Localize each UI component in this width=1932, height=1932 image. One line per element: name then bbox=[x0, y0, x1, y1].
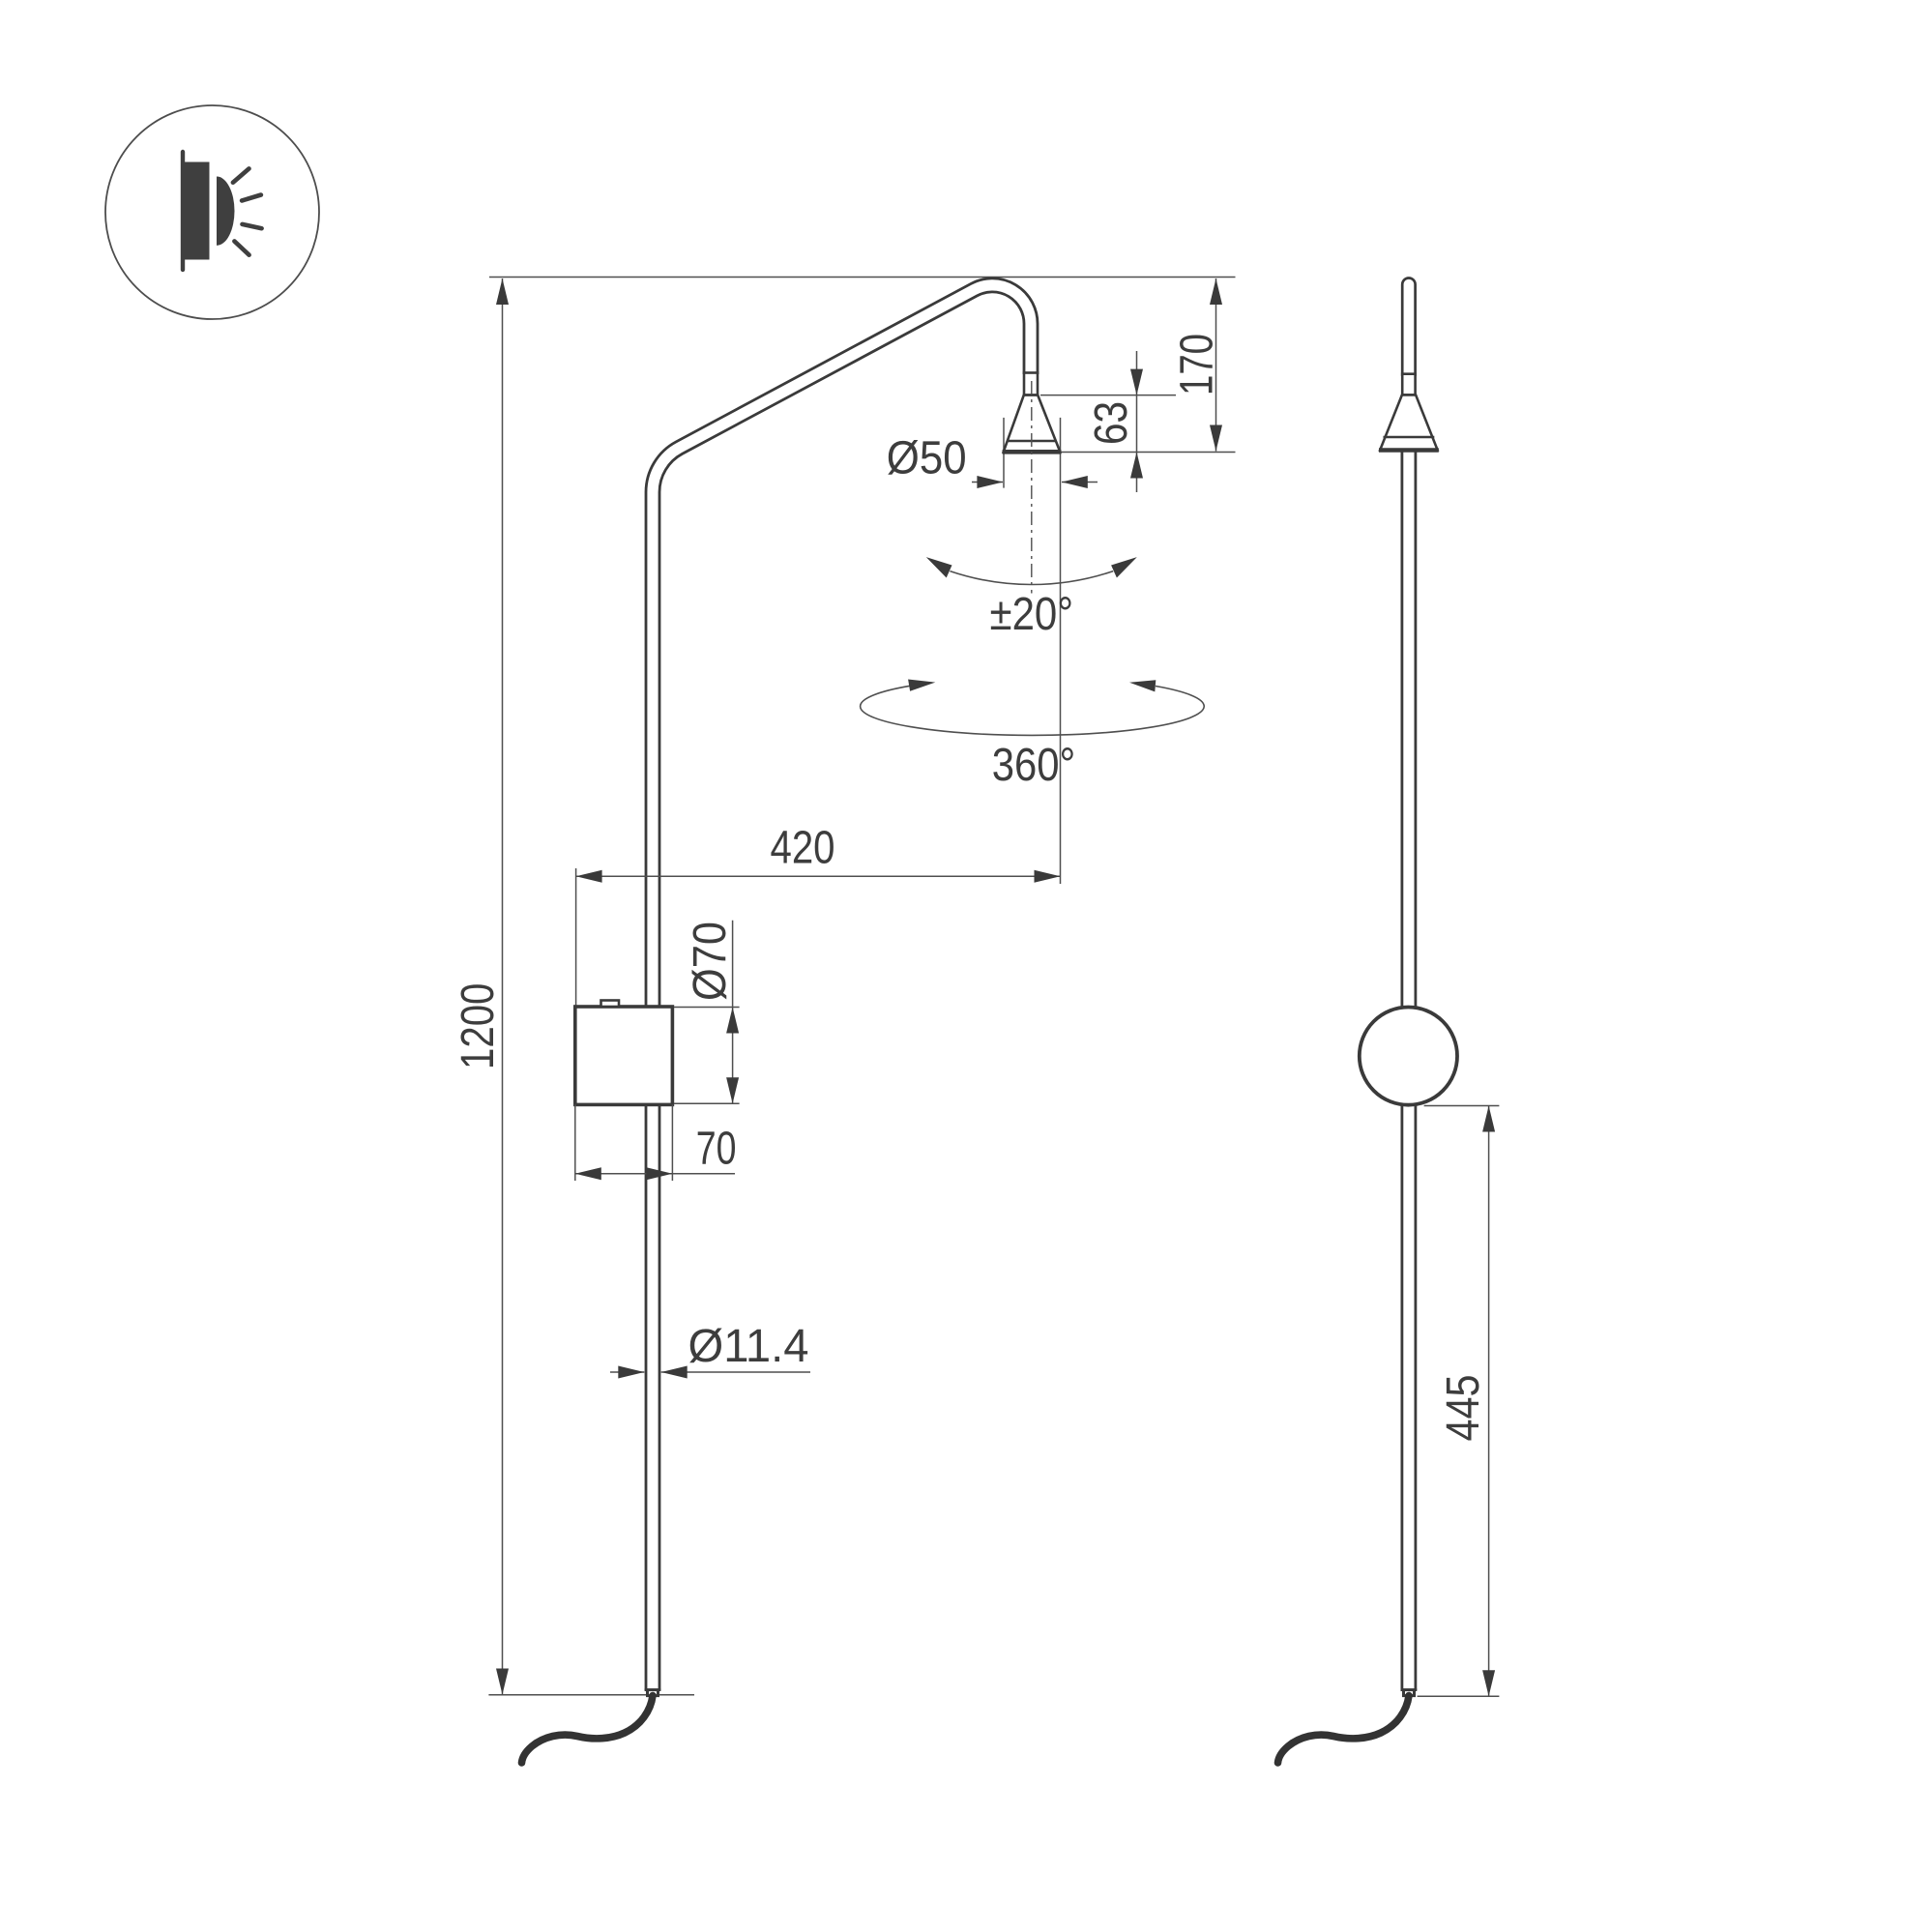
svg-text:Ø70: Ø70 bbox=[685, 922, 736, 1001]
svg-text:1200: 1200 bbox=[453, 983, 504, 1069]
svg-text:420: 420 bbox=[771, 823, 835, 874]
svg-text:445: 445 bbox=[1438, 1375, 1489, 1442]
svg-text:360°: 360° bbox=[992, 740, 1076, 791]
svg-text:Ø50: Ø50 bbox=[887, 433, 967, 484]
svg-text:63: 63 bbox=[1086, 401, 1137, 445]
svg-text:170: 170 bbox=[1171, 334, 1222, 395]
svg-text:70: 70 bbox=[696, 1123, 737, 1174]
svg-text:Ø11.4: Ø11.4 bbox=[688, 1321, 809, 1372]
svg-text:±20°: ±20° bbox=[990, 589, 1074, 640]
